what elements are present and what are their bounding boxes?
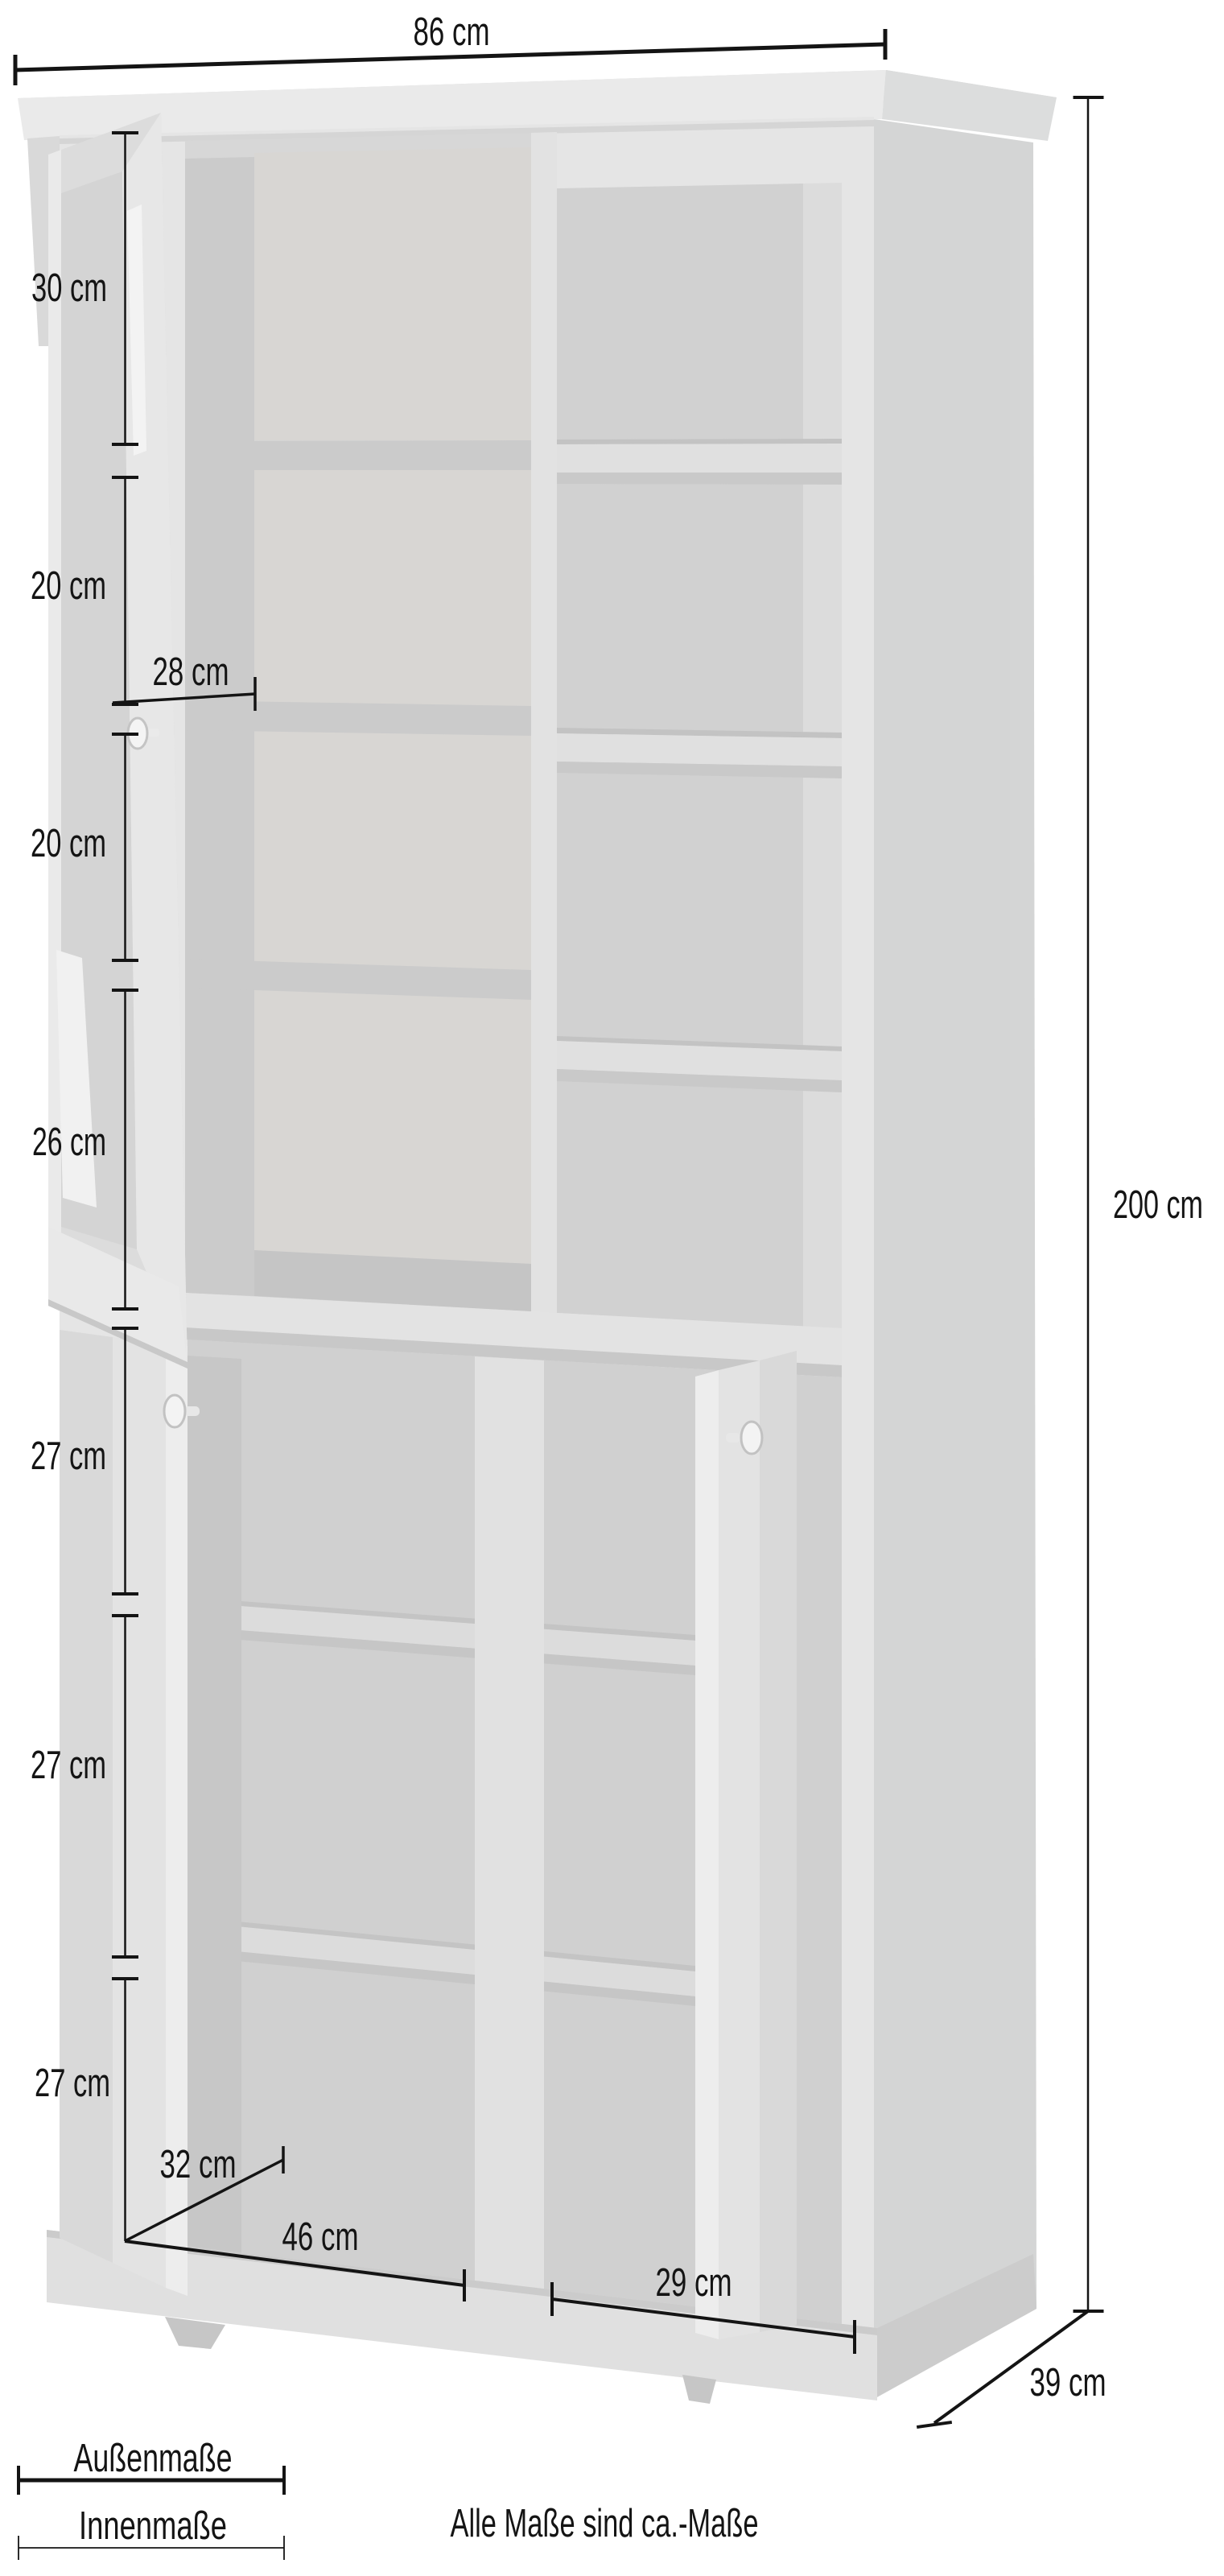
svg-text:20 cm: 20 cm [31, 822, 106, 865]
svg-text:27 cm: 27 cm [31, 1744, 106, 1787]
svg-text:27 cm: 27 cm [31, 1435, 106, 1478]
svg-text:20 cm: 20 cm [31, 564, 106, 608]
svg-text:39 cm: 39 cm [1030, 2361, 1107, 2405]
svg-text:46 cm: 46 cm [282, 2215, 359, 2259]
svg-text:32 cm: 32 cm [160, 2143, 237, 2186]
svg-text:28 cm: 28 cm [153, 650, 229, 694]
svg-text:Innenmaße: Innenmaße [79, 2504, 227, 2548]
svg-text:86 cm: 86 cm [414, 10, 490, 54]
svg-text:30 cm: 30 cm [31, 266, 107, 310]
svg-text:200 cm: 200 cm [1113, 1183, 1203, 1227]
svg-text:Außenmaße: Außenmaße [74, 2437, 233, 2480]
svg-text:27 cm: 27 cm [35, 2062, 110, 2105]
svg-text:Alle Maße sind ca.-Maße: Alle Maße sind ca.-Maße [451, 2502, 759, 2545]
svg-text:26 cm: 26 cm [32, 1121, 106, 1164]
svg-text:29 cm: 29 cm [656, 2261, 732, 2305]
